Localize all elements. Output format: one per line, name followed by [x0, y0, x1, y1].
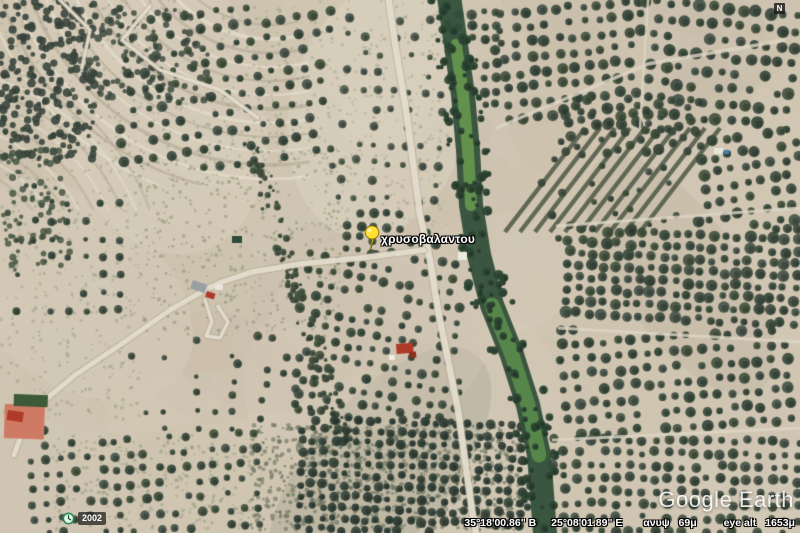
eye-altitude-readout: 1653μ: [765, 517, 795, 529]
eye-altitude-label: eye alt: [724, 517, 757, 529]
status-bar: 35°18'00.86" Β 25°08'01.89" Ε ανυψ 69μ e…: [464, 517, 795, 529]
pushpin-icon[interactable]: [362, 225, 382, 253]
imagery-year: 2002: [78, 512, 106, 525]
google-earth-viewport[interactable]: χρυσοβαλαντου 2002 Google Earth N 35°18'…: [0, 0, 800, 533]
google-earth-watermark: Google Earth: [658, 487, 794, 513]
imagery-time-indicator[interactable]: 2002: [62, 512, 106, 525]
longitude-readout: 25°08'01.89" Ε: [551, 517, 622, 529]
elevation-readout: 69μ: [679, 517, 697, 529]
clock-icon: [62, 512, 75, 525]
elevation-label: ανυψ: [643, 517, 669, 529]
satellite-imagery[interactable]: [0, 0, 800, 533]
latitude-readout: 35°18'00.86" Β: [464, 517, 536, 529]
placemark-label[interactable]: χρυσοβαλαντου: [381, 232, 475, 246]
north-indicator[interactable]: N: [774, 3, 785, 14]
